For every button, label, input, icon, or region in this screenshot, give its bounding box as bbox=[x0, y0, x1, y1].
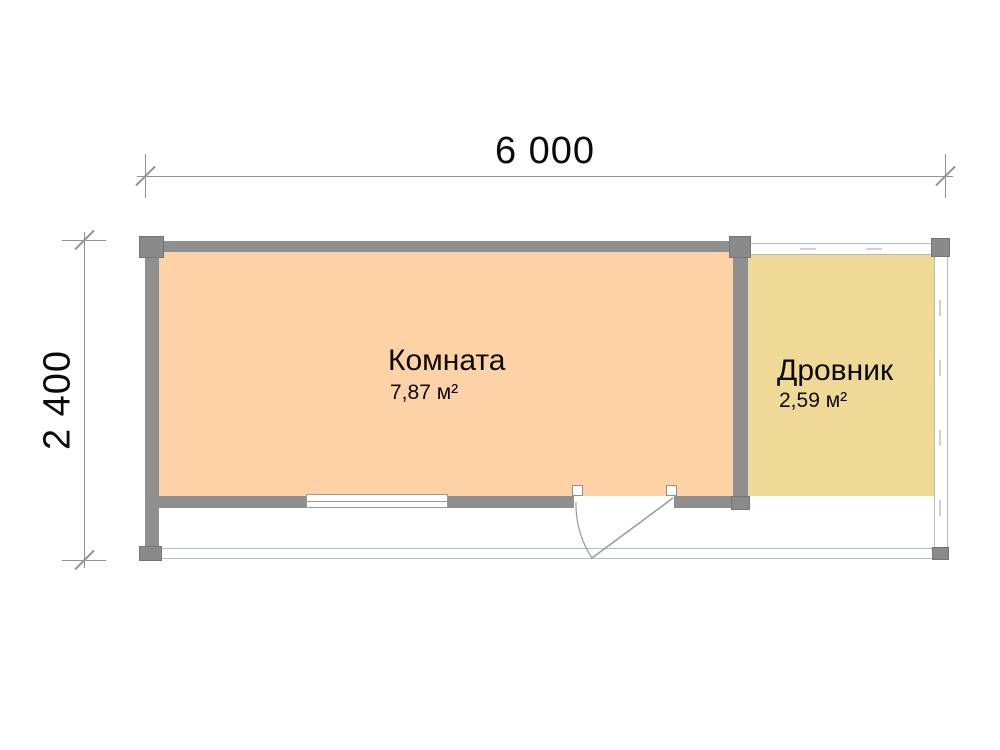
floor-plan-canvas: 6 000 2 400 Комната 7,8 bbox=[0, 0, 1000, 750]
room-komnata-area: 7,87 м² bbox=[390, 382, 458, 403]
room-drovnik-label: Дровник bbox=[777, 356, 893, 386]
door-swing-arc bbox=[576, 502, 592, 558]
room-drovnik-area: 2,59 м² bbox=[779, 390, 847, 411]
room-komnata-label: Комната bbox=[388, 346, 505, 376]
door-leaf-line bbox=[592, 498, 673, 558]
